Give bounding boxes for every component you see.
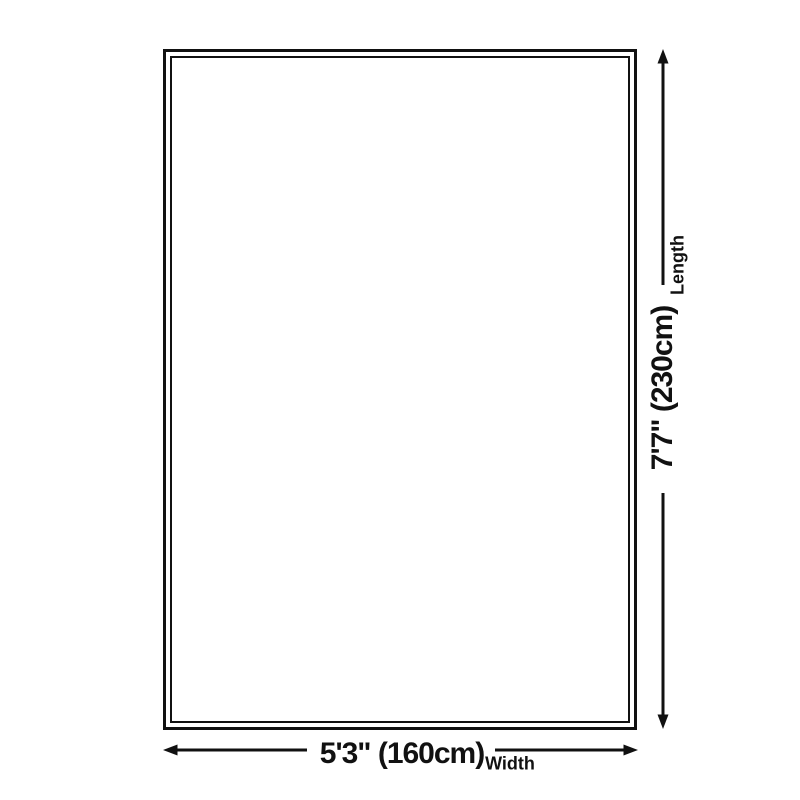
arrowhead-right-icon (624, 745, 639, 756)
length-dimension-label: Length (668, 235, 689, 295)
width-dimension-value: 5'3" (160cm) (320, 737, 484, 771)
arrowhead-down-icon (658, 715, 669, 730)
rug-dimension-diagram: 5'3" (160cm) Width 7'7" (230cm) Length (0, 0, 800, 800)
width-dimension-label: Width (485, 754, 535, 775)
arrowhead-up-icon (658, 49, 669, 64)
length-dimension-value: 7'7" (230cm) (646, 306, 680, 470)
rug-outline (163, 49, 637, 730)
arrowhead-left-icon (163, 745, 178, 756)
rug-outline-inner-border (170, 56, 630, 723)
